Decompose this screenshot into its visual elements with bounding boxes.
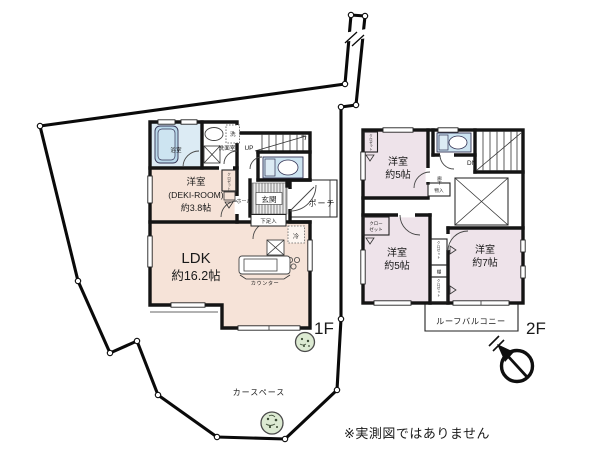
deki-room-sub: (DEKI-ROOM) <box>168 190 224 200</box>
deki-closet-label: クロゼット <box>226 172 231 191</box>
floor2-label: 2F <box>526 319 546 338</box>
compass-north-icon <box>489 336 533 382</box>
room5b-size: 約5帖 <box>384 259 410 272</box>
genkan-label: 玄関 <box>261 194 276 204</box>
counter-label: カウンター <box>251 279 279 287</box>
deki-room-size: 約3.8帖 <box>181 202 212 213</box>
roof-balcony: ルーフバルコニー <box>425 303 518 331</box>
deki-room-name: 洋室 <box>186 176 205 188</box>
stairs-up-label: UP <box>245 145 254 152</box>
closet-2f-topleft-label: クロゼット <box>368 133 372 151</box>
floorplan-canvas: クロゼット 下足入 玄関 冷 カウンター <box>0 0 600 450</box>
washer-label: 洗 <box>230 130 236 138</box>
void-x <box>455 178 508 225</box>
hall-label: ホール <box>236 199 251 205</box>
room7-size: 約7帖 <box>472 256 498 269</box>
closet-l2: ゼット <box>369 226 382 232</box>
tree-icon-1 <box>296 333 315 352</box>
shelf-label: 棚 <box>437 269 442 276</box>
room5a-size: 約5帖 <box>385 168 411 181</box>
storage-label: 物入 <box>434 187 444 194</box>
stairs-dn-label: DN <box>467 160 477 167</box>
corridor-label: 廊下 <box>437 175 443 187</box>
porch-label: ポーチ <box>309 199 336 208</box>
boundary-break-mark <box>341 28 371 46</box>
balcony-label: ルーフバルコニー <box>436 317 506 326</box>
closet-strip-bottom-label: クロゼット <box>436 278 441 297</box>
car-space-label: カースペース <box>233 388 286 397</box>
tree-icon-2 <box>261 412 283 434</box>
shoe-box-label: 下足入 <box>260 218 277 225</box>
toilet-1f <box>263 157 303 178</box>
disclaimer-note: ※実測図ではありません <box>344 426 490 441</box>
room7-name: 洋室 <box>475 243 495 256</box>
floor2-plan: ルーフバルコニー <box>361 128 546 338</box>
room5a-name: 洋室 <box>388 155 408 168</box>
ldk-size: 約16.2帖 <box>171 268 220 283</box>
washroom-label: 洗面室 <box>219 144 236 152</box>
floor1-label: 1F <box>314 319 334 338</box>
toilet-2f <box>437 133 471 152</box>
closet-strip-top-label: クロゼット <box>436 240 441 259</box>
fridge-label: 冷 <box>293 233 299 241</box>
bath-label: 浴室 <box>170 146 182 154</box>
shoe-box: 下足入 <box>251 215 286 227</box>
ldk-name: LDK <box>181 250 210 267</box>
bathtub <box>155 126 178 163</box>
floor1-plan: クロゼット 下足入 玄関 冷 カウンター <box>148 120 337 338</box>
room5b-name: 洋室 <box>387 246 407 259</box>
floorplan-page: クロゼット 下足入 玄関 冷 カウンター <box>0 0 600 450</box>
